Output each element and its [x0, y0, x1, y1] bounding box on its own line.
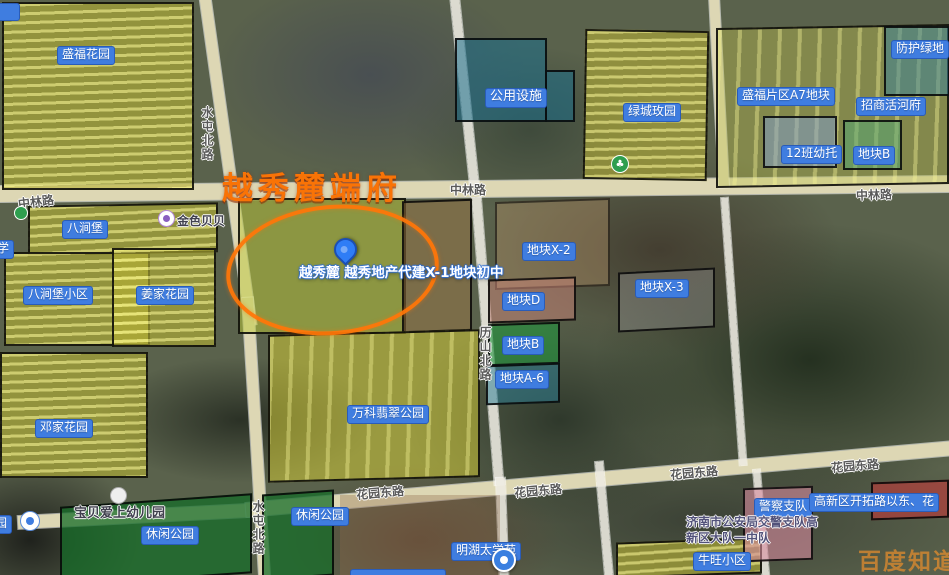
- parcel-public-facility-ext: [545, 70, 575, 122]
- construction-site-patch: [340, 495, 500, 575]
- kindergarten-poi-icon-goldbaby[interactable]: [158, 210, 175, 227]
- poi-label-police-line1[interactable]: 济南市公安局交警支队高: [686, 513, 818, 530]
- map-canvas[interactable]: 盛福花园 公用设施 绿城玫园 盛福片区A7地块 招商活河府 防护绿地 12班幼托…: [0, 0, 949, 575]
- road-label-zhonglin-center: 中林路: [450, 181, 486, 198]
- kindergarten-poi-icon-baby[interactable]: [20, 511, 40, 531]
- parcel-dengjia-huayuan: [0, 352, 148, 478]
- road-label-huayuan-east-2: 花园东路: [513, 480, 562, 501]
- parcel-fanghu-greenbelt: [884, 26, 949, 96]
- parcel-shengfu-huayuan: [2, 2, 194, 190]
- area-label-dengjia-huayuan[interactable]: 邓家花园: [35, 419, 93, 438]
- tree-poi-icon-small[interactable]: [14, 206, 28, 220]
- area-label-partial-left-bottom[interactable]: 园: [0, 515, 12, 534]
- parcel-leisure-park-east: [262, 489, 334, 575]
- tree-glyph: ♣: [616, 159, 625, 170]
- area-label-dikuai-a6[interactable]: 地块A-6: [495, 370, 549, 389]
- area-label-fanghu-greenbelt[interactable]: 防护绿地: [891, 40, 949, 59]
- area-label-shengfu-a7[interactable]: 盛福片区A7地块: [737, 87, 835, 106]
- area-label-niuwang-xiaoqu[interactable]: 牛旺小区: [693, 552, 751, 571]
- pin-result-label[interactable]: 越秀麓 越秀地产代建X-1地块初中: [299, 261, 504, 281]
- poi-inner-dot: [163, 215, 170, 222]
- area-label-dikuai-x2[interactable]: 地块X-2: [522, 242, 576, 261]
- area-label-12ban-youtuo[interactable]: 12班幼托: [781, 145, 842, 164]
- area-label-leisure-park-east[interactable]: 休闲公园: [291, 507, 349, 526]
- poi-label-goldbaby[interactable]: 金色贝贝: [177, 212, 225, 229]
- area-label-public-facility[interactable]: 公用设施: [485, 88, 547, 108]
- tree-poi-icon[interactable]: ♣: [611, 155, 629, 173]
- blue-circle-poi-icon[interactable]: [492, 548, 516, 572]
- parcel-public-facility: [455, 38, 547, 122]
- area-label-jiangjia-huayuan[interactable]: 姜家花园: [136, 286, 194, 305]
- road-label-shuitun-north-lower: 水屯北路: [250, 500, 267, 556]
- area-label-bajianbao-xiaoqu[interactable]: 八涧堡小区: [23, 286, 93, 305]
- area-label-partial-topleft[interactable]: [0, 3, 20, 21]
- poi-inner-dot: [26, 517, 34, 525]
- poi-label-baby-kindergarten[interactable]: 宝贝爱上幼儿园: [74, 502, 165, 521]
- area-label-dikuai-x3[interactable]: 地块X-3: [635, 279, 689, 298]
- area-label-zhaoshang[interactable]: 招商活河府: [856, 97, 926, 116]
- road-label-huayuan-east-3: 花园东路: [669, 462, 718, 483]
- area-label-lvcheng[interactable]: 绿城玫园: [623, 103, 681, 122]
- road-label-shuitun-north-upper: 水屯北路: [199, 106, 216, 162]
- poi-inner-dot: [500, 556, 508, 564]
- area-label-shengfu-huayuan[interactable]: 盛福花园: [57, 46, 115, 65]
- area-label-dikuai-d[interactable]: 地块D: [502, 292, 545, 311]
- area-label-partial-bottom-center[interactable]: [350, 569, 446, 575]
- baidu-zhidao-watermark: 百度知道: [858, 542, 949, 575]
- road-label-zhonglin-east: 中林路: [856, 185, 893, 203]
- area-label-leisure-park-west[interactable]: 休闲公园: [141, 526, 199, 545]
- parcel-dikuai-x3: [618, 267, 715, 332]
- area-label-dikuai-b-center[interactable]: 地块B: [502, 336, 544, 355]
- project-title-overlay: 越秀麓端府: [222, 163, 402, 208]
- road-label-lishan-north: 历山北路: [477, 326, 494, 382]
- area-label-vanke-feicui-park[interactable]: 万科翡翠公园: [347, 405, 429, 424]
- road-right-vertical-lower: [721, 198, 747, 466]
- area-label-partial-left-mid[interactable]: 学: [0, 240, 14, 259]
- road-label-huayuan-east-4: 花园东路: [830, 455, 879, 476]
- area-label-gaoxinqu-kaituo[interactable]: 高新区开拓路以东、花: [809, 493, 939, 512]
- area-label-bajianbao[interactable]: 八涧堡: [62, 220, 108, 239]
- poi-label-police-line2[interactable]: 新区大队一中队: [686, 529, 770, 546]
- area-label-dikuai-b-topright[interactable]: 地块B: [853, 146, 895, 165]
